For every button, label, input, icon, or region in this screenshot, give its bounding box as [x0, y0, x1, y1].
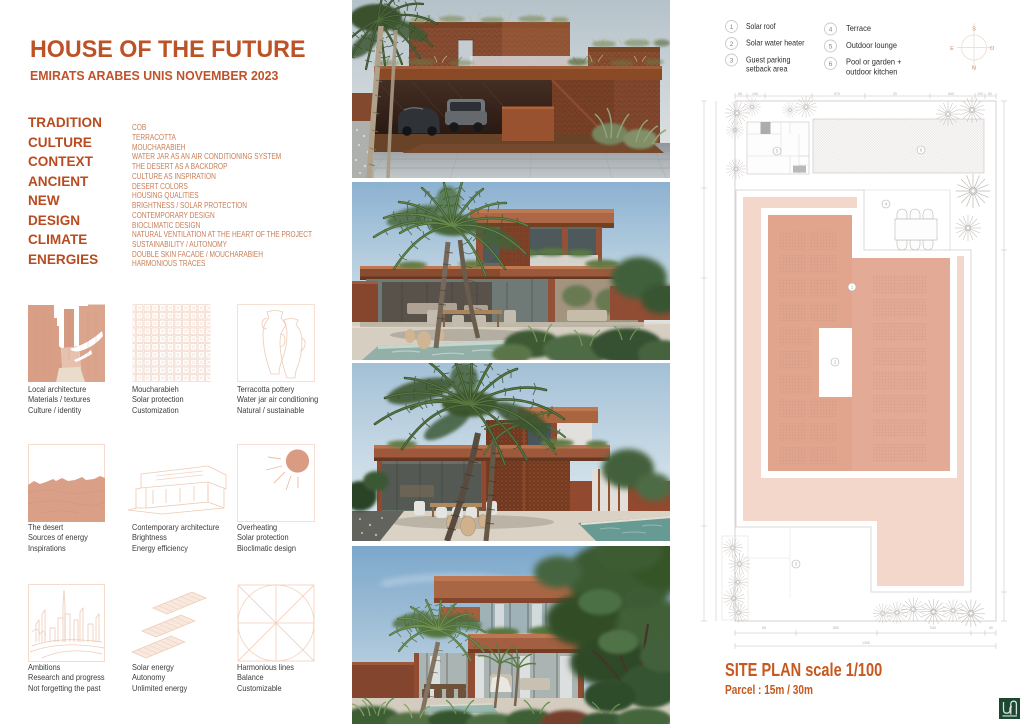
svg-text:800: 800: [833, 626, 839, 630]
svg-text:S: S: [972, 27, 976, 33]
svg-text:3: 3: [730, 57, 734, 64]
svg-text:60: 60: [738, 92, 742, 96]
svg-text:1: 1: [730, 24, 734, 31]
svg-text:6: 6: [829, 61, 833, 68]
svg-text:60: 60: [988, 92, 992, 96]
svg-text:Solar water heater: Solar water heater: [746, 38, 805, 48]
svg-text:5: 5: [829, 43, 833, 50]
svg-text:140: 140: [752, 92, 758, 96]
svg-text:540: 540: [948, 92, 954, 96]
svg-text:setback area: setback area: [746, 64, 788, 74]
svg-text:O: O: [990, 46, 995, 52]
svg-text:Solar roof: Solar roof: [746, 21, 776, 31]
svg-text:20: 20: [893, 92, 897, 96]
svg-text:60: 60: [989, 626, 993, 630]
svg-text:570: 570: [834, 92, 840, 96]
svg-text:E: E: [950, 46, 954, 52]
svg-text:Outdoor lounge: Outdoor lounge: [846, 40, 897, 50]
svg-text:Terrace: Terrace: [846, 23, 871, 33]
svg-text:540: 540: [930, 626, 936, 630]
svg-text:outdoor kitchen: outdoor kitchen: [846, 66, 898, 76]
svg-text:Pool or garden +: Pool or garden +: [846, 56, 902, 66]
svg-text:N: N: [972, 65, 976, 71]
svg-text:2: 2: [730, 41, 734, 48]
svg-text:1300: 1300: [862, 641, 870, 645]
svg-text:100: 100: [977, 92, 983, 96]
svg-text:60: 60: [762, 626, 766, 630]
svg-text:4: 4: [829, 26, 833, 33]
